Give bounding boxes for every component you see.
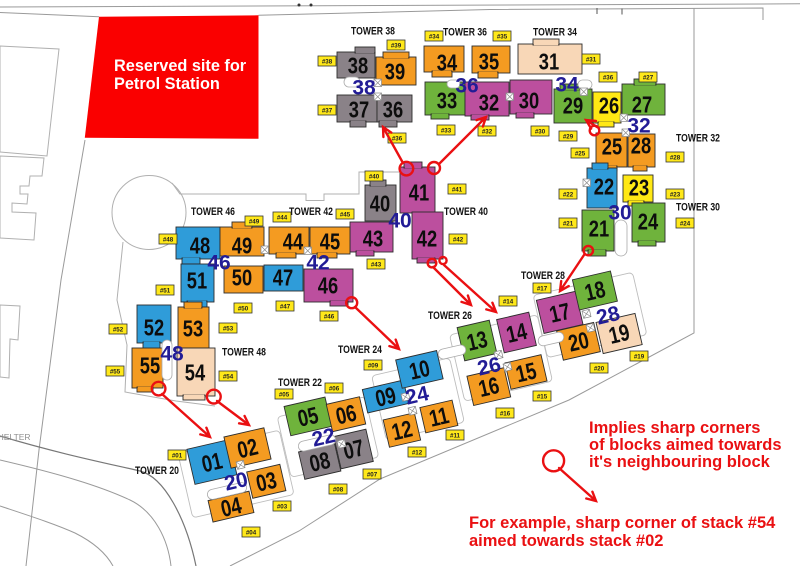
svg-text:30: 30 bbox=[519, 88, 539, 114]
svg-text:#03: #03 bbox=[277, 504, 288, 511]
svg-text:#20: #20 bbox=[594, 366, 605, 373]
svg-text:#51: #51 bbox=[160, 288, 171, 295]
svg-text:50: 50 bbox=[232, 265, 252, 291]
svg-text:#50: #50 bbox=[238, 306, 249, 313]
svg-text:#04: #04 bbox=[246, 530, 257, 537]
svg-text:30: 30 bbox=[608, 201, 631, 224]
svg-text:Implies sharp corners: Implies sharp corners bbox=[589, 419, 761, 437]
svg-text:#29: #29 bbox=[563, 134, 574, 141]
svg-text:of blocks aimed towards: of blocks aimed towards bbox=[589, 436, 782, 454]
svg-text:#16: #16 bbox=[500, 411, 511, 418]
svg-text:#19: #19 bbox=[634, 354, 645, 361]
svg-text:#21: #21 bbox=[563, 221, 574, 228]
svg-text:TOWER 40: TOWER 40 bbox=[444, 206, 488, 218]
svg-text:#14: #14 bbox=[503, 299, 514, 306]
svg-text:#43: #43 bbox=[371, 262, 382, 269]
svg-text:TOWER 22: TOWER 22 bbox=[278, 377, 322, 389]
svg-text:42: 42 bbox=[306, 251, 329, 274]
svg-text:#47: #47 bbox=[280, 304, 291, 311]
svg-text:42: 42 bbox=[417, 226, 437, 252]
svg-text:TOWER 28: TOWER 28 bbox=[521, 270, 565, 282]
svg-text:TOWER 20: TOWER 20 bbox=[135, 465, 179, 477]
svg-text:#45: #45 bbox=[340, 212, 351, 219]
svg-text:40: 40 bbox=[388, 209, 411, 232]
svg-text:25: 25 bbox=[602, 134, 623, 160]
svg-text:54: 54 bbox=[185, 360, 206, 386]
svg-text:38: 38 bbox=[352, 76, 376, 99]
svg-text:TOWER 46: TOWER 46 bbox=[191, 206, 235, 218]
svg-text:34: 34 bbox=[437, 50, 458, 76]
svg-text:#35: #35 bbox=[497, 34, 508, 41]
svg-text:44: 44 bbox=[283, 229, 304, 255]
svg-text:#53: #53 bbox=[223, 326, 234, 333]
svg-text:29: 29 bbox=[563, 93, 583, 119]
svg-text:#22: #22 bbox=[563, 192, 574, 199]
svg-text:#25: #25 bbox=[575, 151, 586, 158]
svg-text:#37: #37 bbox=[322, 108, 333, 115]
svg-text:23: 23 bbox=[629, 175, 649, 201]
svg-text:Petrol Station: Petrol Station bbox=[114, 75, 220, 93]
svg-text:24: 24 bbox=[638, 209, 659, 235]
svg-text:39: 39 bbox=[385, 59, 405, 85]
svg-text:26: 26 bbox=[599, 93, 619, 119]
svg-text:#48: #48 bbox=[163, 237, 174, 244]
svg-text:48: 48 bbox=[160, 342, 184, 365]
svg-text:#32: #32 bbox=[482, 129, 493, 136]
svg-text:#54: #54 bbox=[223, 374, 234, 381]
svg-text:#46: #46 bbox=[324, 314, 335, 321]
svg-text:49: 49 bbox=[232, 233, 252, 259]
svg-text:43: 43 bbox=[363, 226, 383, 252]
svg-text:41: 41 bbox=[409, 180, 430, 206]
svg-text:#01: #01 bbox=[172, 453, 183, 460]
svg-text:TOWER 26: TOWER 26 bbox=[428, 310, 472, 322]
svg-text:TOWER 42: TOWER 42 bbox=[289, 206, 333, 218]
svg-text:38: 38 bbox=[348, 53, 369, 79]
svg-text:#36: #36 bbox=[392, 136, 403, 143]
svg-text:TOWER 38: TOWER 38 bbox=[351, 26, 395, 38]
svg-text:21: 21 bbox=[589, 216, 610, 242]
svg-text:#33: #33 bbox=[441, 128, 452, 135]
svg-text:#07: #07 bbox=[367, 472, 378, 479]
svg-text:46: 46 bbox=[318, 273, 338, 299]
svg-text:#05: #05 bbox=[279, 392, 290, 399]
svg-text:#55: #55 bbox=[110, 369, 121, 376]
svg-text:#08: #08 bbox=[333, 487, 344, 494]
svg-text:33: 33 bbox=[437, 88, 457, 114]
svg-text:46: 46 bbox=[207, 251, 230, 274]
svg-text:#44: #44 bbox=[277, 215, 288, 222]
svg-text:SHELTER: SHELTER bbox=[0, 432, 31, 442]
svg-text:55: 55 bbox=[140, 353, 161, 379]
svg-text:Reserved site for: Reserved site for bbox=[114, 57, 247, 75]
svg-text:34: 34 bbox=[555, 73, 579, 96]
svg-text:For example, sharp corner of s: For example, sharp corner of stack #54 bbox=[469, 514, 776, 532]
svg-text:#31: #31 bbox=[586, 57, 597, 64]
svg-text:#27: #27 bbox=[643, 75, 654, 82]
svg-text:35: 35 bbox=[479, 49, 500, 75]
svg-text:#24: #24 bbox=[680, 221, 691, 228]
svg-text:#39: #39 bbox=[391, 43, 402, 50]
svg-text:52: 52 bbox=[144, 315, 164, 341]
svg-text:#11: #11 bbox=[450, 433, 461, 440]
svg-text:#30: #30 bbox=[535, 129, 546, 136]
svg-text:#15: #15 bbox=[537, 394, 548, 401]
svg-text:it's neighbouring block: it's neighbouring block bbox=[589, 453, 771, 471]
svg-text:31: 31 bbox=[539, 49, 560, 75]
svg-text:47: 47 bbox=[273, 265, 293, 291]
svg-text:#36: #36 bbox=[603, 75, 614, 82]
svg-text:#40: #40 bbox=[369, 174, 380, 181]
svg-text:32: 32 bbox=[627, 114, 650, 137]
svg-text:TOWER 48: TOWER 48 bbox=[222, 347, 266, 359]
svg-text:40: 40 bbox=[370, 191, 390, 217]
svg-text:53: 53 bbox=[183, 316, 203, 342]
svg-text:36: 36 bbox=[455, 74, 478, 97]
svg-text:TOWER 24: TOWER 24 bbox=[338, 344, 382, 356]
svg-text:TOWER 34: TOWER 34 bbox=[533, 27, 577, 39]
svg-text:#23: #23 bbox=[670, 192, 681, 199]
svg-text:TOWER 36: TOWER 36 bbox=[443, 27, 487, 39]
svg-text:51: 51 bbox=[187, 268, 208, 294]
svg-text:#41: #41 bbox=[452, 187, 463, 194]
svg-text:#38: #38 bbox=[322, 59, 333, 66]
svg-text:#12: #12 bbox=[412, 450, 423, 457]
svg-text:#52: #52 bbox=[113, 327, 124, 334]
svg-text:#49: #49 bbox=[249, 219, 260, 226]
svg-text:TOWER 32: TOWER 32 bbox=[676, 133, 720, 145]
svg-text:#42: #42 bbox=[453, 237, 464, 244]
svg-text:#28: #28 bbox=[670, 155, 681, 162]
svg-text:#09: #09 bbox=[368, 363, 379, 370]
svg-text:#17: #17 bbox=[537, 286, 548, 293]
svg-text:22: 22 bbox=[594, 174, 614, 200]
svg-text:#34: #34 bbox=[429, 34, 440, 41]
svg-text:aimed towards stack #02: aimed towards stack #02 bbox=[469, 532, 663, 550]
svg-text:32: 32 bbox=[479, 90, 499, 116]
svg-text:#06: #06 bbox=[329, 386, 340, 393]
svg-text:37: 37 bbox=[349, 97, 369, 123]
svg-text:TOWER 30: TOWER 30 bbox=[676, 202, 720, 214]
svg-text:36: 36 bbox=[383, 97, 403, 123]
